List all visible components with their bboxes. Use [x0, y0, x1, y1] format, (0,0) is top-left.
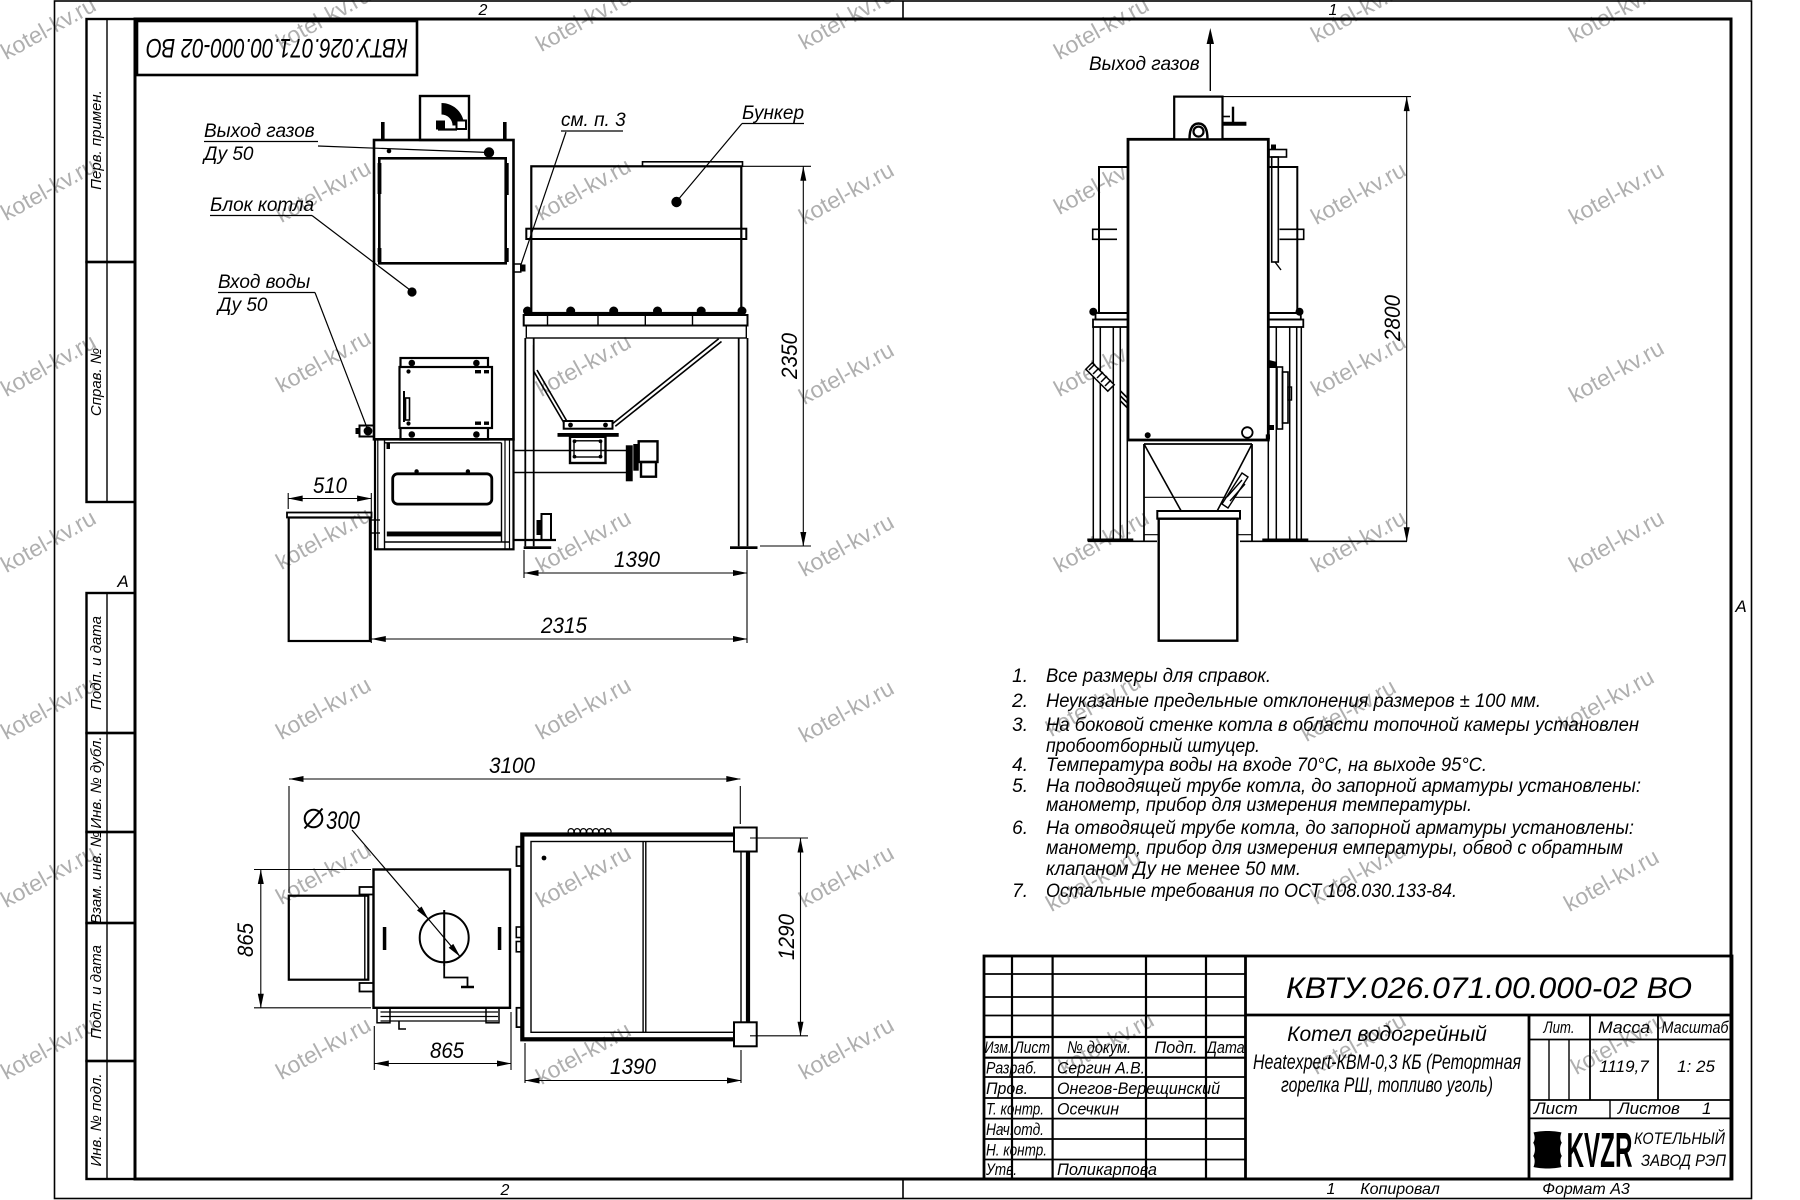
svg-text:Котел водогрейный: Котел водогрейный — [1287, 1023, 1487, 1046]
svg-text:Лист: Лист — [1533, 1099, 1578, 1118]
svg-text:kotel-kv.ru: kotel-kv.ru — [1306, 0, 1410, 48]
svg-text:KVZR: KVZR — [1567, 1124, 1633, 1178]
svg-text:Инв. № дубл.: Инв. № дубл. — [88, 736, 105, 828]
svg-text:Копировал: Копировал — [1360, 1181, 1440, 1198]
svg-text:Формат А3: Формат А3 — [1542, 1181, 1630, 1198]
svg-text:Пров.: Пров. — [986, 1079, 1028, 1098]
svg-text:Ду 50: Ду 50 — [216, 295, 268, 316]
svg-text:горелка РШ, топливо уголь): горелка РШ, топливо уголь) — [1281, 1074, 1493, 1097]
svg-text:Масштаб: Масштаб — [1662, 1018, 1730, 1037]
svg-text:2800: 2800 — [1380, 294, 1405, 342]
svg-text:4.: 4. — [1012, 755, 1028, 776]
svg-text:Нач.отд.: Нач.отд. — [986, 1120, 1044, 1139]
svg-text:2.: 2. — [1011, 691, 1028, 712]
svg-text:Подп. и дата: Подп. и дата — [88, 616, 105, 710]
svg-text:Лит.: Лит. — [1543, 1018, 1575, 1037]
svg-text:kotel-kv.ru: kotel-kv.ru — [0, 0, 100, 65]
svg-text:Выход газов: Выход газов — [1089, 54, 1200, 75]
svg-text:1.: 1. — [1012, 666, 1028, 687]
svg-text:kotel-kv.ru: kotel-kv.ru — [1564, 504, 1668, 577]
svg-text:Разраб.: Разраб. — [986, 1059, 1037, 1078]
svg-text:kotel-kv.ru: kotel-kv.ru — [1306, 156, 1410, 229]
svg-text:6.: 6. — [1012, 818, 1028, 839]
svg-text:1: 1 — [1702, 1099, 1711, 1118]
svg-text:kotel-kv.ru: kotel-kv.ru — [794, 1011, 898, 1084]
svg-text:см. п. 3: см. п. 3 — [561, 110, 626, 131]
svg-text:А: А — [116, 572, 128, 591]
svg-text:kotel-kv.ru: kotel-kv.ru — [0, 839, 100, 912]
svg-text:300: 300 — [326, 807, 360, 835]
svg-text:На отводящей трубе котла, до з: На отводящей трубе котла, до запорной ар… — [1046, 818, 1634, 839]
svg-text:КВТУ.026.071.00.000-02 ВО: КВТУ.026.071.00.000-02 ВО — [1286, 972, 1692, 1005]
svg-text:kotel-kv.ru: kotel-kv.ru — [794, 674, 898, 747]
svg-text:kotel-kv.ru: kotel-kv.ru — [0, 1011, 100, 1084]
svg-text:kotel-kv.ru: kotel-kv.ru — [794, 508, 898, 581]
svg-text:kotel-kv.ru: kotel-kv.ru — [271, 324, 375, 397]
svg-text:Изм.: Изм. — [985, 1038, 1012, 1057]
svg-text:Подп. и дата: Подп. и дата — [88, 945, 105, 1039]
svg-text:2: 2 — [478, 2, 488, 19]
svg-text:Остальные требования по ОСТ 10: Остальные требования по ОСТ 108.030.133-… — [1046, 881, 1457, 902]
svg-text:Утв.: Утв. — [985, 1160, 1017, 1179]
svg-text:Масса: Масса — [1598, 1018, 1650, 1037]
svg-text:kotel-kv.ru: kotel-kv.ru — [531, 0, 635, 57]
svg-text:3100: 3100 — [489, 753, 536, 778]
svg-text:Инв. № подл.: Инв. № подл. — [88, 1073, 105, 1166]
svg-text:Сергин А.В.: Сергин А.В. — [1057, 1059, 1145, 1078]
svg-text:kotel-kv.ru: kotel-kv.ru — [271, 836, 375, 909]
svg-text:kotel-kv.ru: kotel-kv.ru — [271, 1011, 375, 1084]
svg-text:Взам. инв. №: Взам. инв. № — [88, 831, 105, 924]
svg-text:Листов: Листов — [1617, 1099, 1680, 1118]
svg-text:kotel-kv.ru: kotel-kv.ru — [794, 839, 898, 912]
svg-text:манометр, прибор для измерения: манометр, прибор для измерения емператур… — [1046, 838, 1623, 859]
svg-text:Все размеры для справок.: Все размеры для справок. — [1046, 666, 1271, 687]
svg-text:1: 25: 1: 25 — [1677, 1057, 1715, 1076]
svg-text:А: А — [1734, 597, 1746, 616]
svg-text:Перв. примен.: Перв. примен. — [88, 90, 105, 190]
svg-text:пробоотборный штуцер.: пробоотборный штуцер. — [1046, 736, 1260, 757]
svg-text:Дата: Дата — [1205, 1038, 1245, 1057]
svg-text:510: 510 — [313, 473, 348, 498]
svg-text:kotel-kv.ru: kotel-kv.ru — [531, 839, 635, 912]
svg-text:1290: 1290 — [774, 913, 799, 960]
svg-text:kotel-kv.ru: kotel-kv.ru — [271, 671, 375, 744]
svg-text:Подп.: Подп. — [1155, 1038, 1198, 1057]
svg-text:На боковой стенке котла в обла: На боковой стенке котла в области топочн… — [1046, 715, 1640, 736]
svg-text:Температура воды на входе 70°С: Температура воды на входе 70°С, на выход… — [1046, 755, 1487, 776]
svg-text:КОТЕЛЬНЫЙ: КОТЕЛЬНЫЙ — [1634, 1128, 1726, 1148]
svg-text:№ докум.: № докум. — [1067, 1038, 1131, 1057]
svg-text:1119,7: 1119,7 — [1599, 1057, 1649, 1076]
svg-text:Неуказаные предельные отклонен: Неуказаные предельные отклонения размеро… — [1046, 691, 1541, 712]
svg-text:2315: 2315 — [540, 613, 588, 638]
svg-text:Бункер: Бункер — [742, 103, 804, 124]
svg-text:КВТУ.026.071.00.000-02 ВО: КВТУ.026.071.00.000-02 ВО — [146, 33, 408, 63]
svg-text:kotel-kv.ru: kotel-kv.ru — [794, 336, 898, 409]
svg-text:kotel-kv.ru: kotel-kv.ru — [794, 156, 898, 229]
svg-text:kotel-kv.ru: kotel-kv.ru — [271, 154, 375, 227]
svg-text:kotel-kv.ru: kotel-kv.ru — [1564, 156, 1668, 229]
svg-text:Осечкин: Осечкин — [1057, 1100, 1120, 1119]
svg-text:Ду 50: Ду 50 — [202, 144, 254, 165]
svg-text:Онегов-Верещинский: Онегов-Верещинский — [1057, 1079, 1221, 1098]
svg-text:2: 2 — [500, 1182, 510, 1199]
svg-text:3.: 3. — [1012, 715, 1028, 736]
svg-text:7.: 7. — [1012, 881, 1028, 902]
svg-text:865: 865 — [430, 1038, 465, 1063]
svg-text:ЗАВОД РЭП: ЗАВОД РЭП — [1641, 1151, 1727, 1170]
svg-text:Вход воды: Вход воды — [218, 272, 310, 293]
svg-text:kotel-kv.ru: kotel-kv.ru — [0, 504, 100, 577]
svg-text:kotel-kv.ru: kotel-kv.ru — [0, 671, 100, 744]
svg-text:На подводящей трубе котла, до: На подводящей трубе котла, до запорной а… — [1046, 776, 1641, 797]
svg-text:865: 865 — [233, 922, 258, 957]
svg-text:Поликарпова: Поликарпова — [1057, 1160, 1157, 1179]
svg-text:kotel-kv.ru: kotel-kv.ru — [531, 671, 635, 744]
svg-text:Н. контр.: Н. контр. — [986, 1141, 1047, 1160]
svg-text:Справ. №: Справ. № — [88, 348, 105, 416]
svg-text:Т. контр.: Т. контр. — [986, 1100, 1044, 1119]
svg-text:kotel-kv.ru: kotel-kv.ru — [0, 328, 100, 401]
svg-text:Блок котла: Блок котла — [210, 195, 314, 216]
svg-text:kotel-kv.ru: kotel-kv.ru — [794, 0, 898, 55]
svg-text:kotel-kv.ru: kotel-kv.ru — [1564, 334, 1668, 407]
svg-text:1: 1 — [1327, 1181, 1336, 1198]
svg-text:Лист: Лист — [1013, 1038, 1050, 1057]
svg-text:kotel-kv.ru: kotel-kv.ru — [1564, 0, 1668, 48]
svg-text:1390: 1390 — [614, 547, 661, 572]
svg-text:Heatexpert-КВМ-0,3 КБ (Ретортн: Heatexpert-КВМ-0,3 КБ (Ретортная — [1253, 1051, 1521, 1074]
svg-text:манометр, прибор для измерения: манометр, прибор для измерения температу… — [1046, 795, 1472, 816]
svg-text:клапаном Ду не менее 50 мм.: клапаном Ду не менее 50 мм. — [1046, 859, 1301, 880]
svg-text:Выход газов: Выход газов — [204, 121, 315, 142]
svg-text:kotel-kv.ru: kotel-kv.ru — [0, 152, 100, 225]
svg-text:2350: 2350 — [777, 332, 802, 380]
svg-text:1: 1 — [1329, 2, 1338, 19]
svg-text:1390: 1390 — [610, 1054, 657, 1079]
svg-text:5.: 5. — [1012, 776, 1028, 797]
svg-text:kotel-kv.ru: kotel-kv.ru — [531, 328, 635, 401]
